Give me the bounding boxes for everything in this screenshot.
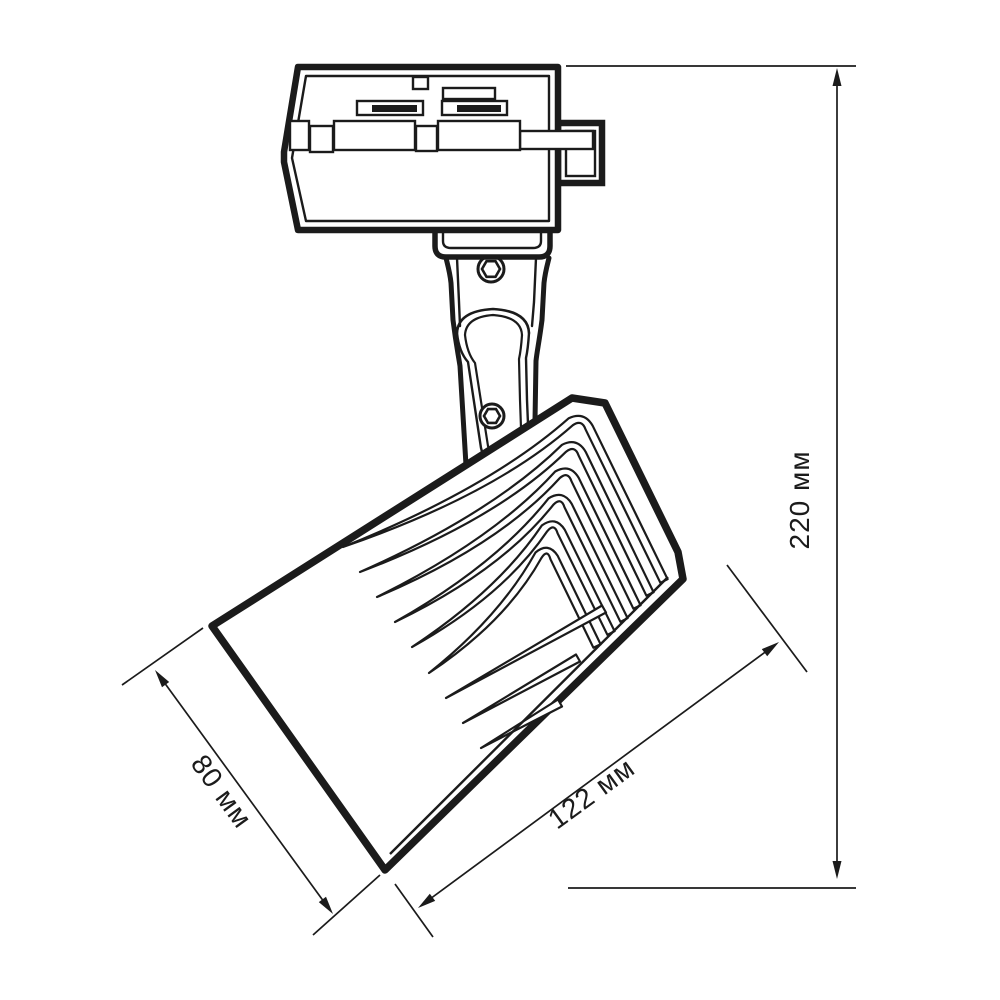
arrow-lower: [319, 897, 333, 914]
arrow-down: [833, 861, 842, 879]
lamp-body: [212, 398, 683, 870]
band-segment: [310, 126, 333, 152]
plate-right-line: [526, 333, 529, 424]
band-segment: [290, 121, 309, 150]
height-label: 220 мм: [784, 451, 815, 550]
arm-inner-left: [457, 258, 460, 326]
hex-bolt-upper: [478, 256, 504, 282]
contact-band: [290, 121, 520, 152]
right-contact: [457, 105, 501, 112]
arm-inner-right: [532, 258, 536, 326]
length-label: 122 мм: [542, 752, 640, 835]
technical-drawing-page: 220 мм 122 мм 80 мм: [0, 0, 1000, 1000]
plate-right-line2: [519, 335, 522, 428]
pivot-dome-outer: [457, 309, 529, 333]
upper-right-slot: [443, 88, 495, 99]
arrow-upper: [155, 670, 169, 687]
track-adapter: [284, 67, 602, 257]
pivot-dome-inner: [465, 315, 522, 335]
arrow-left: [418, 894, 435, 908]
small-square-slot: [413, 77, 428, 89]
band-segment: [438, 121, 520, 150]
left-contact: [372, 105, 417, 112]
contact-bar: [520, 131, 593, 149]
ext-line-left: [395, 884, 433, 937]
arm-outer-right: [535, 258, 549, 421]
arrow-up: [833, 68, 842, 86]
adapter-collar: [435, 231, 550, 257]
track-light-technical-drawing: 220 мм 122 мм 80 мм: [0, 0, 1000, 1000]
hex-bolt-lower: [480, 404, 504, 428]
band-segment: [416, 126, 437, 151]
arm-outer-left: [446, 258, 466, 465]
arrow-right: [762, 642, 779, 656]
plate-left-line2: [465, 335, 490, 452]
band-segment: [334, 121, 415, 150]
